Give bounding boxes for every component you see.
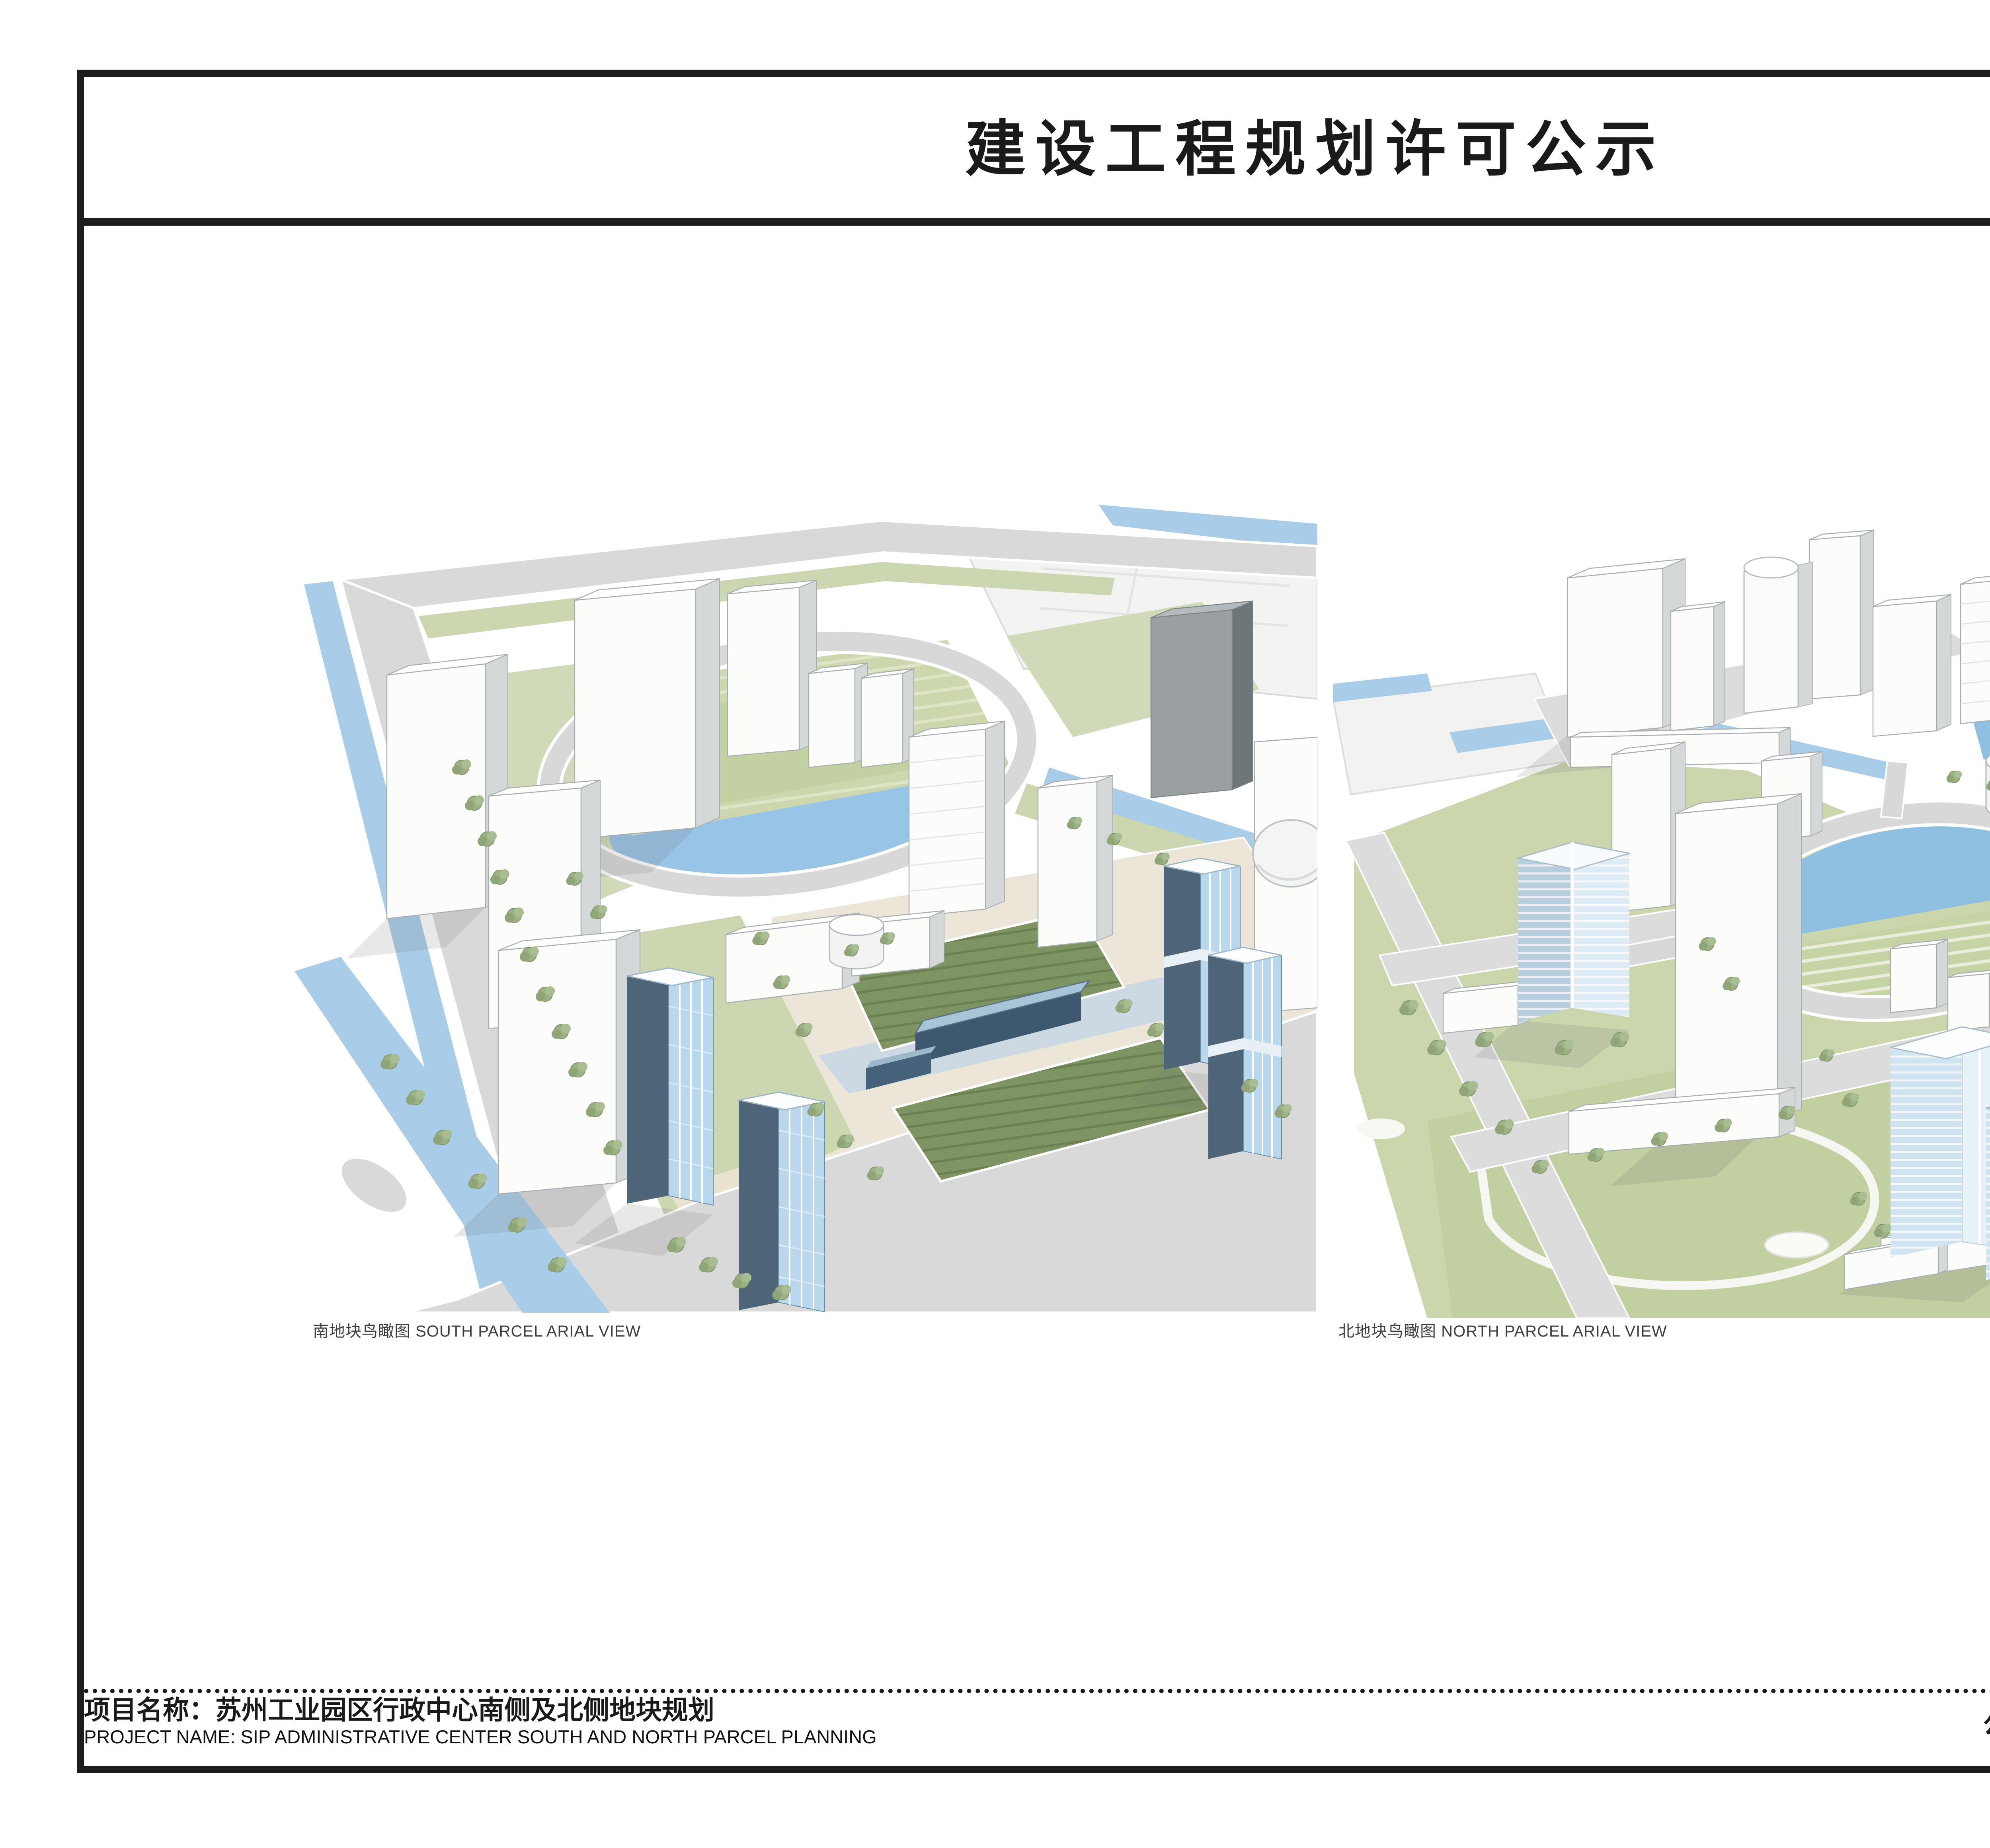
south-parcel-figure <box>295 505 1317 1313</box>
title-band: 建设工程规划许可公示 <box>77 70 1990 218</box>
footer-project-block: 项目名称：苏州工业园区行政中心南侧及北侧地块规划 PROJECT NAME: S… <box>84 1696 877 1747</box>
south-parcel-rendering <box>295 505 1317 1313</box>
title-separator <box>77 218 1990 226</box>
south-caption: 南地块鸟瞰图 SOUTH PARCEL ARIAL VIEW <box>313 1318 641 1341</box>
page-title: 建设工程规划许可公示 <box>956 100 1666 187</box>
project-name-zh: 项目名称：苏州工业园区行政中心南侧及北侧地块规划 <box>84 1696 877 1725</box>
project-name-en: PROJECT NAME: SIP ADMINISTRATIVE CENTER … <box>84 1727 877 1747</box>
dotted-divider <box>84 1689 1990 1693</box>
north-parcel-figure <box>1333 498 1990 1318</box>
north-caption: 北地块鸟瞰图 NORTH PARCEL ARIAL VIEW <box>1338 1318 1667 1341</box>
north-parcel-rendering <box>1333 498 1990 1318</box>
planning-permit-notice-page: { "notice": { "title": "建设工程规划许可公示" }, "… <box>0 0 1990 1848</box>
publicity-period: 公示时间：2012年3月10日 — —2012年4月9日 <box>1983 1704 1990 1741</box>
